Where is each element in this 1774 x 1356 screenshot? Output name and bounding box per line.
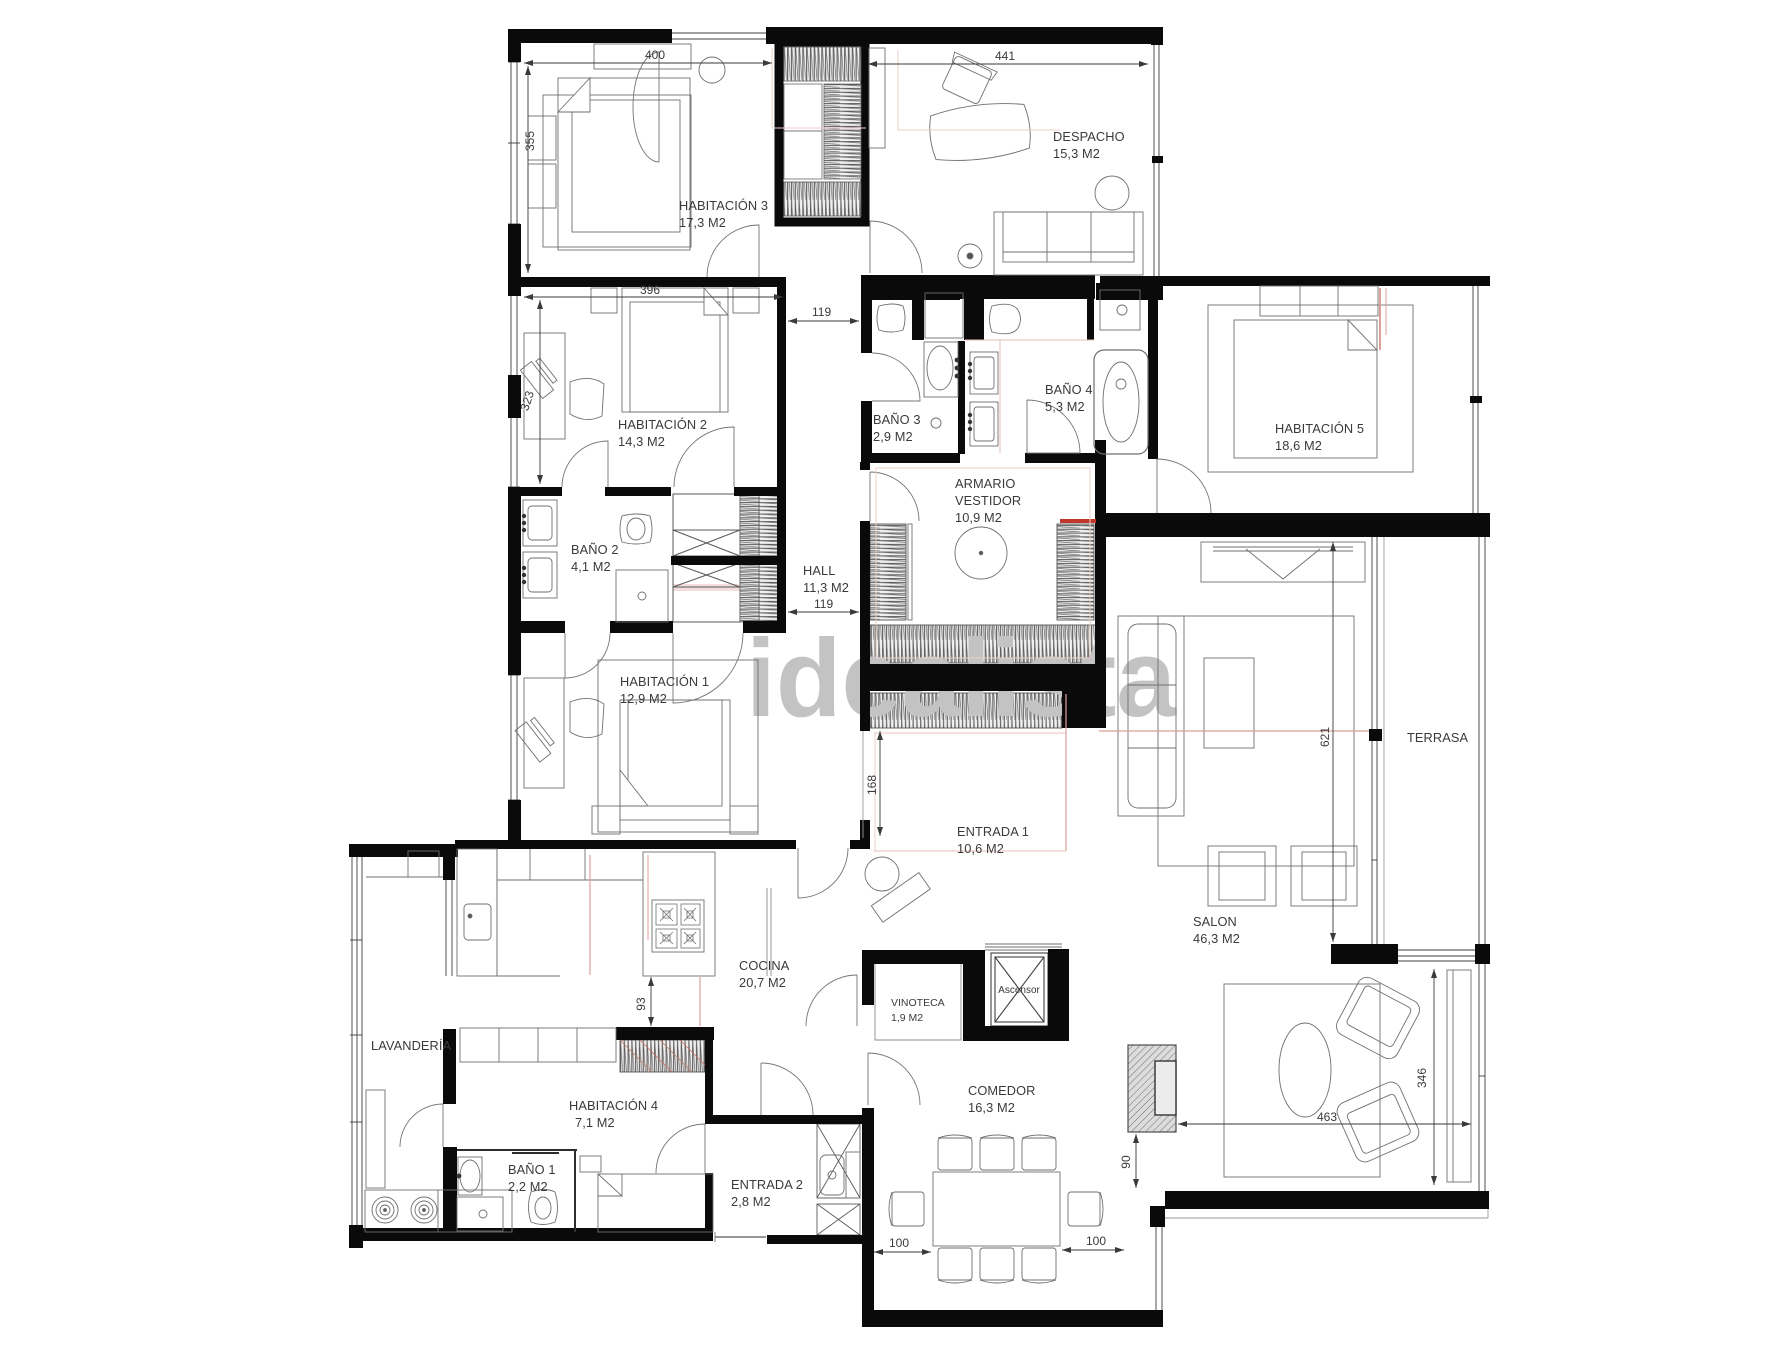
svg-text:HABITACIÓN 2: HABITACIÓN 2 <box>618 417 707 432</box>
svg-text:11,3 M2: 11,3 M2 <box>803 580 849 595</box>
svg-text:14,3 M2: 14,3 M2 <box>618 434 665 449</box>
svg-text:20,7 M2: 20,7 M2 <box>739 975 786 990</box>
svg-text:7,1 M2: 7,1 M2 <box>575 1115 615 1130</box>
svg-text:12,9 M2: 12,9 M2 <box>620 691 667 706</box>
svg-text:119: 119 <box>814 597 833 611</box>
svg-text:5,3 M2: 5,3 M2 <box>1045 399 1085 414</box>
svg-text:SALON: SALON <box>1193 914 1237 929</box>
svg-text:2,8 M2: 2,8 M2 <box>731 1194 771 1209</box>
svg-text:BAÑO 2: BAÑO 2 <box>571 542 619 557</box>
svg-text:TERRASA: TERRASA <box>1407 730 1469 745</box>
svg-text:18,6 M2: 18,6 M2 <box>1275 438 1322 453</box>
svg-text:15,3 M2: 15,3 M2 <box>1053 146 1100 161</box>
svg-text:400: 400 <box>645 48 665 62</box>
svg-text:COCINA: COCINA <box>739 958 790 973</box>
svg-text:VESTIDOR: VESTIDOR <box>955 493 1021 508</box>
svg-text:BAÑO 4: BAÑO 4 <box>1045 382 1093 397</box>
svg-text:463: 463 <box>1317 1110 1337 1124</box>
svg-text:16,3 M2: 16,3 M2 <box>968 1100 1015 1115</box>
svg-text:93: 93 <box>634 997 648 1011</box>
svg-text:346: 346 <box>1415 1068 1429 1088</box>
svg-text:HABITACIÓN 5: HABITACIÓN 5 <box>1275 421 1364 436</box>
svg-text:VINOTECA: VINOTECA <box>891 997 945 1009</box>
svg-text:46,3 M2: 46,3 M2 <box>1193 931 1240 946</box>
svg-text:COMEDOR: COMEDOR <box>968 1083 1036 1098</box>
svg-text:BAÑO 1: BAÑO 1 <box>508 1162 556 1177</box>
svg-text:119: 119 <box>812 305 831 319</box>
svg-text:168: 168 <box>865 775 879 795</box>
svg-text:441: 441 <box>995 49 1015 63</box>
svg-text:4,1 M2: 4,1 M2 <box>571 559 611 574</box>
svg-text:ENTRADA 2: ENTRADA 2 <box>731 1177 803 1192</box>
svg-text:BAÑO 3: BAÑO 3 <box>873 412 921 427</box>
svg-text:10,9 M2: 10,9 M2 <box>955 510 1002 525</box>
svg-text:90: 90 <box>1119 1155 1133 1169</box>
svg-text:HALL: HALL <box>803 563 835 578</box>
svg-text:396: 396 <box>640 283 660 297</box>
svg-text:LAVANDERÍA: LAVANDERÍA <box>371 1038 452 1053</box>
svg-text:ARMARIO: ARMARIO <box>955 476 1015 491</box>
svg-text:621: 621 <box>1318 727 1332 747</box>
svg-text:1,9 M2: 1,9 M2 <box>891 1012 923 1024</box>
svg-text:100: 100 <box>889 1236 909 1250</box>
svg-text:HABITACIÓN 3: HABITACIÓN 3 <box>679 198 768 213</box>
svg-text:HABITACIÓN 4: HABITACIÓN 4 <box>569 1098 658 1113</box>
svg-text:2,9 M2: 2,9 M2 <box>873 429 913 444</box>
svg-text:2,2 M2: 2,2 M2 <box>508 1179 548 1194</box>
svg-text:355: 355 <box>523 131 537 151</box>
svg-text:100: 100 <box>1086 1234 1106 1248</box>
svg-text:Ascensor: Ascensor <box>998 985 1040 996</box>
svg-text:ENTRADA 1: ENTRADA 1 <box>957 824 1029 839</box>
svg-text:DESPACHO: DESPACHO <box>1053 129 1125 144</box>
svg-text:HABITACIÓN 1: HABITACIÓN 1 <box>620 674 709 689</box>
svg-text:10,6 M2: 10,6 M2 <box>957 841 1004 856</box>
svg-text:17,3 M2: 17,3 M2 <box>679 215 726 230</box>
